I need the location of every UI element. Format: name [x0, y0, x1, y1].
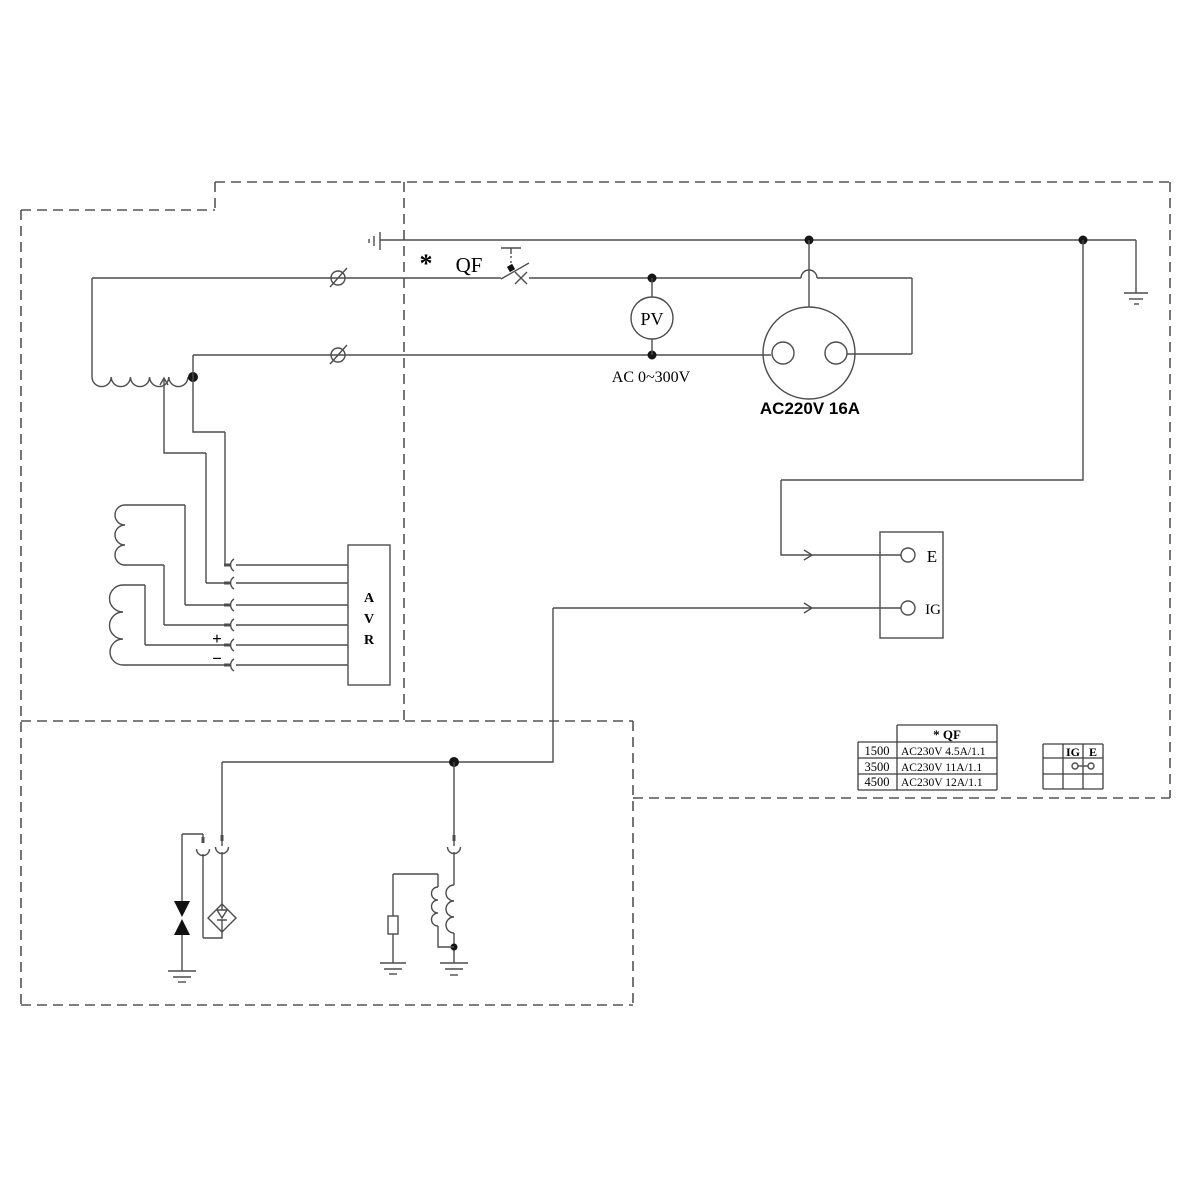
inline-connector-icon [224, 559, 348, 671]
terminal-ig-label: IG [925, 602, 941, 618]
avr-label-v: V [364, 612, 374, 627]
avr-harness: + − [123, 559, 348, 671]
ignition-coil [393, 762, 468, 975]
stator-output-wire [193, 377, 225, 565]
output-hot-wire [92, 248, 912, 354]
terminal-e [901, 548, 915, 562]
power-socket: AC220V 16A [760, 240, 860, 418]
voltmeter-pv: PV AC 0~300V [612, 278, 691, 386]
table-header: * QF [933, 727, 961, 742]
spark-plug [380, 874, 406, 974]
ground-rail [369, 232, 1148, 304]
qf-label: QF [456, 253, 483, 277]
ig-wire [222, 603, 901, 767]
wiring-diagram: PV AC 0~300V AC220V 16A E IG [0, 0, 1191, 1191]
surge-arrester-icon [168, 834, 196, 982]
table-cell-spec: AC230V 4.5A/1.1 [901, 746, 986, 758]
earth-ground-left-icon [369, 232, 380, 250]
table-cell-model: 3500 [865, 760, 890, 774]
table-cell-model: 1500 [865, 744, 890, 758]
switch-table-ig-header: IG [1066, 745, 1080, 759]
socket-label: AC220V 16A [760, 399, 860, 418]
avr-label-a: A [364, 591, 375, 606]
schematic-canvas: PV AC 0~300V AC220V 16A E IG [0, 0, 1191, 1191]
table-cell-spec: AC230V 12A/1.1 [901, 777, 983, 789]
ig-e-switch-table: IG E [1043, 744, 1103, 789]
earth-ground-icon [440, 963, 468, 975]
generator-stator-coil [92, 278, 225, 583]
earth-ground-icon [380, 963, 406, 974]
exciter-coil-upper [115, 505, 185, 625]
terminal-ig [901, 601, 915, 615]
avr-box: A V R [348, 545, 390, 685]
qf-spec-table: * QF 1500 3500 4500 AC230V 4.5A/1.1 AC23… [858, 725, 997, 790]
diode-icon [217, 910, 227, 918]
avr-label-r: R [364, 633, 375, 648]
stop-diode [182, 762, 236, 938]
earth-ground-right-icon [1124, 293, 1148, 304]
voltage-range-label: AC 0~300V [612, 369, 691, 386]
breaker-cross-icon [515, 272, 527, 284]
terminal-e-label: E [927, 547, 937, 566]
minus-label: − [212, 649, 222, 668]
terminal-block: E IG [880, 532, 943, 638]
exciter-coil-lower [110, 585, 145, 665]
earth-ground-icon [168, 971, 196, 982]
asterisk-label: * [420, 249, 433, 278]
table-cell-spec: AC230V 11A/1.1 [901, 762, 982, 774]
plus-label: + [212, 629, 222, 648]
table-cell-model: 4500 [865, 775, 890, 789]
voltmeter-label: PV [640, 309, 663, 329]
output-neutral-wire [193, 345, 771, 364]
enclosure-borders [21, 182, 1170, 1005]
switch-table-e-header: E [1089, 745, 1097, 759]
breaker-qf [501, 248, 529, 284]
